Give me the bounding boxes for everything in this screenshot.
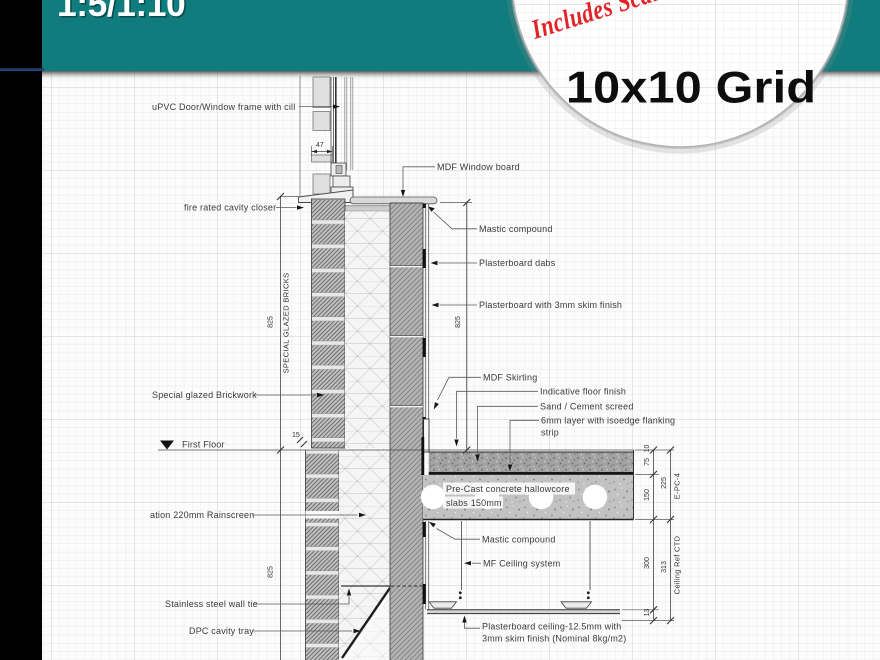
svg-text:225: 225 [661,477,668,489]
svg-text:Stainless steel wall tie: Stainless steel wall tie [165,599,258,609]
svg-text:825: 825 [268,316,275,328]
svg-text:Plasterboard ceiling-12.5mm wi: Plasterboard ceiling-12.5mm with [482,622,621,632]
svg-text:1:5/1:10: 1:5/1:10 [57,0,185,24]
svg-text:Special glazed Brickwork: Special glazed Brickwork [152,390,257,400]
svg-text:47: 47 [316,142,324,149]
svg-text:3mm skim finish (Nominal 8kg/m: 3mm skim finish (Nominal 8kg/m2) [482,634,626,644]
svg-text:6mm layer with isoedge flankin: 6mm layer with isoedge flanking [541,415,675,425]
svg-text:slabs 150mm: slabs 150mm [446,498,502,508]
svg-text:10: 10 [644,445,651,453]
svg-text:Pre-Cast concrete hallowcore: Pre-Cast concrete hallowcore [446,484,570,494]
svg-text:ation 220mm Rainscreen: ation 220mm Rainscreen [150,510,254,520]
svg-text:10x10 Grid: 10x10 Grid [566,62,816,112]
svg-text:First Floor: First Floor [182,440,225,450]
svg-text:Ceiling Ref CTD: Ceiling Ref CTD [673,535,682,594]
svg-text:313: 313 [661,561,668,573]
svg-text:Indicative floor finish: Indicative floor finish [540,386,626,396]
svg-text:uPVC Door/Window frame with ci: uPVC Door/Window frame with cill [152,102,295,112]
svg-text:Plasterboard dabs: Plasterboard dabs [479,258,556,268]
svg-text:300: 300 [644,557,651,569]
svg-text:fire rated cavity closer: fire rated cavity closer [184,203,276,213]
svg-text:Mastic compound: Mastic compound [479,224,553,234]
svg-text:MF Ceiling system: MF Ceiling system [483,558,560,568]
svg-text:15: 15 [292,432,300,439]
svg-text:Sand / Cement screed: Sand / Cement screed [540,401,634,411]
svg-text:13: 13 [644,609,651,617]
svg-text:MDF Window board: MDF Window board [437,162,520,172]
svg-text:strip: strip [541,427,559,437]
svg-text:MDF Skirting: MDF Skirting [483,373,537,383]
svg-text:Mastic compound: Mastic compound [482,534,556,544]
svg-text:E-PC-4: E-PC-4 [673,473,682,499]
svg-text:150: 150 [644,489,651,501]
svg-text:SPECIAL GLAZED BRICKS: SPECIAL GLAZED BRICKS [282,273,291,374]
svg-text:DPC cavity tray: DPC cavity tray [189,626,254,636]
svg-text:75: 75 [644,458,651,466]
svg-text:Plasterboard with 3mm skim fin: Plasterboard with 3mm skim finish [479,300,622,310]
svg-text:825: 825 [455,316,462,328]
svg-text:825: 825 [268,566,275,578]
